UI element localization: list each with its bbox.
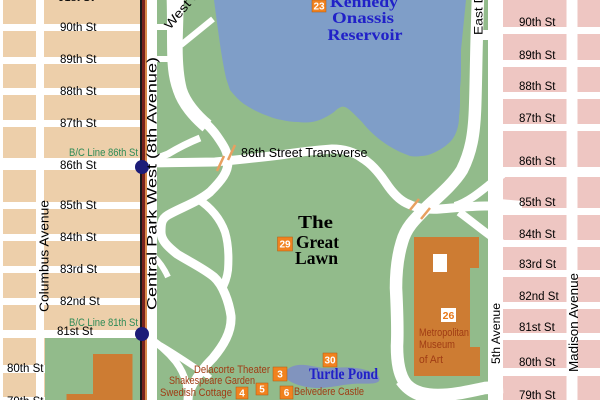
svg-text:The: The (298, 212, 333, 232)
svg-text:85th St: 85th St (60, 200, 97, 212)
svg-text:88th St: 88th St (60, 86, 97, 98)
svg-text:85th St: 85th St (519, 197, 556, 209)
svg-text:Museum: Museum (419, 339, 455, 351)
svg-text:79th St: 79th St (519, 390, 556, 400)
svg-text:Metropolitan: Metropolitan (419, 327, 469, 339)
svg-text:82nd St: 82nd St (60, 296, 100, 308)
svg-text:6: 6 (284, 388, 290, 399)
svg-text:89th St: 89th St (519, 50, 556, 62)
svg-text:Onassis: Onassis (332, 10, 394, 27)
svg-text:Madison Avenue: Madison Avenue (567, 273, 581, 372)
svg-text:86th St: 86th St (519, 156, 556, 168)
svg-text:83rd St: 83rd St (60, 264, 98, 276)
svg-text:88th St: 88th St (519, 81, 556, 93)
svg-text:Belvedere Castle: Belvedere Castle (294, 386, 364, 398)
svg-text:Swedish Cottage: Swedish Cottage (160, 387, 232, 399)
svg-text:26: 26 (443, 310, 455, 322)
svg-text:80th St: 80th St (7, 363, 44, 375)
svg-text:Shakespeare Garden: Shakespeare Garden (169, 375, 255, 387)
svg-text:23: 23 (313, 2, 325, 13)
svg-text:Reservoir: Reservoir (328, 27, 403, 44)
svg-text:81st St: 81st St (519, 322, 556, 334)
svg-text:84th St: 84th St (519, 229, 556, 241)
svg-text:Turtle Pond: Turtle Pond (309, 366, 378, 383)
svg-text:B/C Line 81th St: B/C Line 81th St (69, 317, 138, 329)
svg-text:90th St: 90th St (60, 22, 97, 34)
svg-text:86th Street Transverse: 86th Street Transverse (241, 146, 368, 160)
svg-text:3: 3 (277, 370, 283, 381)
svg-text:79th St: 79th St (7, 396, 44, 400)
svg-text:4: 4 (239, 389, 245, 400)
svg-text:83rd St: 83rd St (519, 259, 557, 271)
svg-text:29: 29 (279, 240, 291, 251)
svg-text:5: 5 (259, 385, 265, 396)
svg-text:84th St: 84th St (60, 232, 97, 244)
svg-text:5th Avenue: 5th Avenue (489, 303, 503, 364)
svg-text:86th St: 86th St (60, 160, 97, 172)
svg-text:East Drive: East Drive (472, 0, 486, 35)
svg-text:30: 30 (324, 356, 336, 367)
svg-text:B/C Line 86th St: B/C Line 86th St (69, 147, 138, 159)
svg-text:Central Park West (8th Avenue): Central Park West (8th Avenue) (145, 57, 160, 310)
svg-text:90th St: 90th St (519, 17, 556, 29)
svg-text:of Art: of Art (419, 354, 443, 366)
svg-text:91st St: 91st St (58, 0, 95, 4)
svg-text:Columbus Avenue: Columbus Avenue (37, 200, 52, 312)
svg-text:Lawn: Lawn (295, 248, 338, 268)
svg-text:87th St: 87th St (519, 113, 556, 125)
svg-text:87th St: 87th St (60, 118, 97, 130)
svg-text:80th St: 80th St (519, 357, 556, 369)
svg-text:82nd St: 82nd St (519, 291, 559, 303)
svg-text:89th St: 89th St (60, 54, 97, 66)
